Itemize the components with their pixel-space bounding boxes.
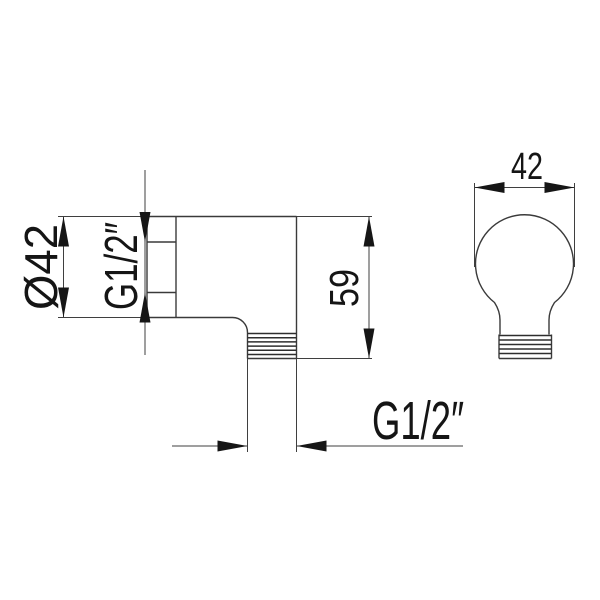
arrow-left-icon: [475, 182, 505, 193]
body-bottom-edge-fillet: [147, 318, 248, 359]
arrow-up-icon: [364, 217, 375, 247]
dimension-inlet-thread: G1/2″: [95, 170, 151, 355]
arrow-left-icon: [297, 441, 327, 452]
front-view-body: [476, 215, 574, 359]
outlet-thread-lines: [248, 334, 297, 355]
drawing-page: Ø42 G1/2″ 59 G1/2″: [0, 0, 600, 600]
front-width-label: 42: [511, 146, 543, 188]
arrow-right-icon: [218, 441, 248, 452]
technical-drawing-canvas: Ø42 G1/2″ 59 G1/2″: [0, 0, 600, 600]
flange-diameter-label: Ø42: [15, 224, 67, 310]
outlet-thread-label: G1/2″: [372, 391, 464, 451]
escutcheon-outline: [476, 215, 574, 335]
overall-height-label: 59: [321, 269, 367, 307]
dimension-flange-diameter: Ø42: [15, 217, 69, 318]
inlet-thread-label: G1/2″: [95, 222, 147, 310]
front-thread-lines: [499, 336, 552, 354]
dimension-overall-height: 59: [321, 217, 375, 359]
dimension-outlet-thread: G1/2″: [172, 359, 464, 453]
arrow-right-icon: [545, 182, 575, 193]
dimension-front-width: 42: [475, 146, 575, 267]
arrow-down-icon: [364, 329, 375, 359]
